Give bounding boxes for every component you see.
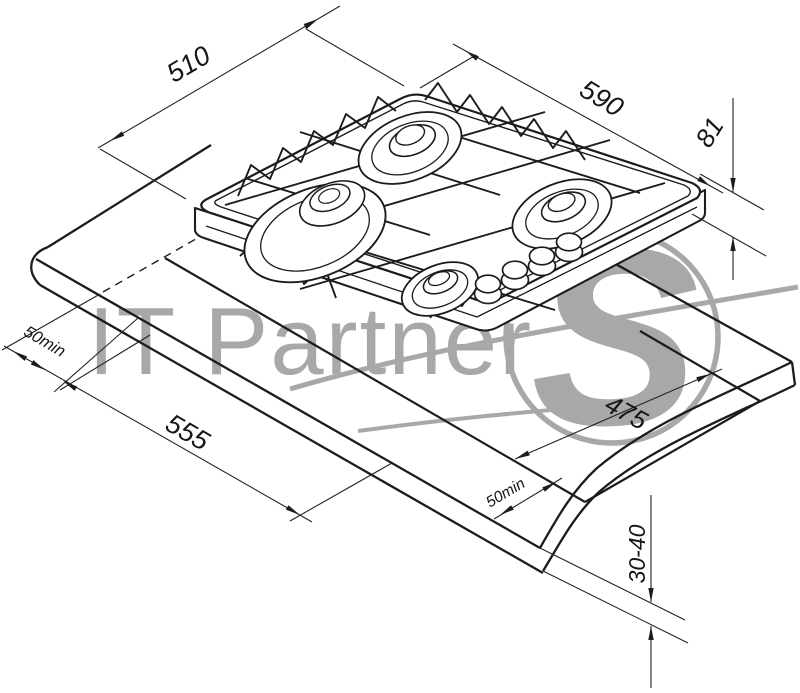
dim-label-worktop-thickness: 30-40	[624, 524, 650, 583]
worktop-right-corner-edge	[792, 362, 795, 385]
dim-label-side-clearance: 50min	[21, 323, 69, 361]
dim-label-cutout-length: 555	[160, 408, 215, 457]
dim-label-front-clearance: 50min	[483, 475, 528, 511]
worktop-left-end-edge	[48, 145, 211, 247]
diagram-canvas: IT Partner S	[0, 0, 800, 693]
dim-label-hob-height: 81	[689, 112, 730, 152]
worktop-left-break-edge	[31, 247, 48, 285]
dim-label-hob-depth: 510	[161, 40, 215, 89]
installation-diagram: IT Partner S	[0, 0, 800, 693]
